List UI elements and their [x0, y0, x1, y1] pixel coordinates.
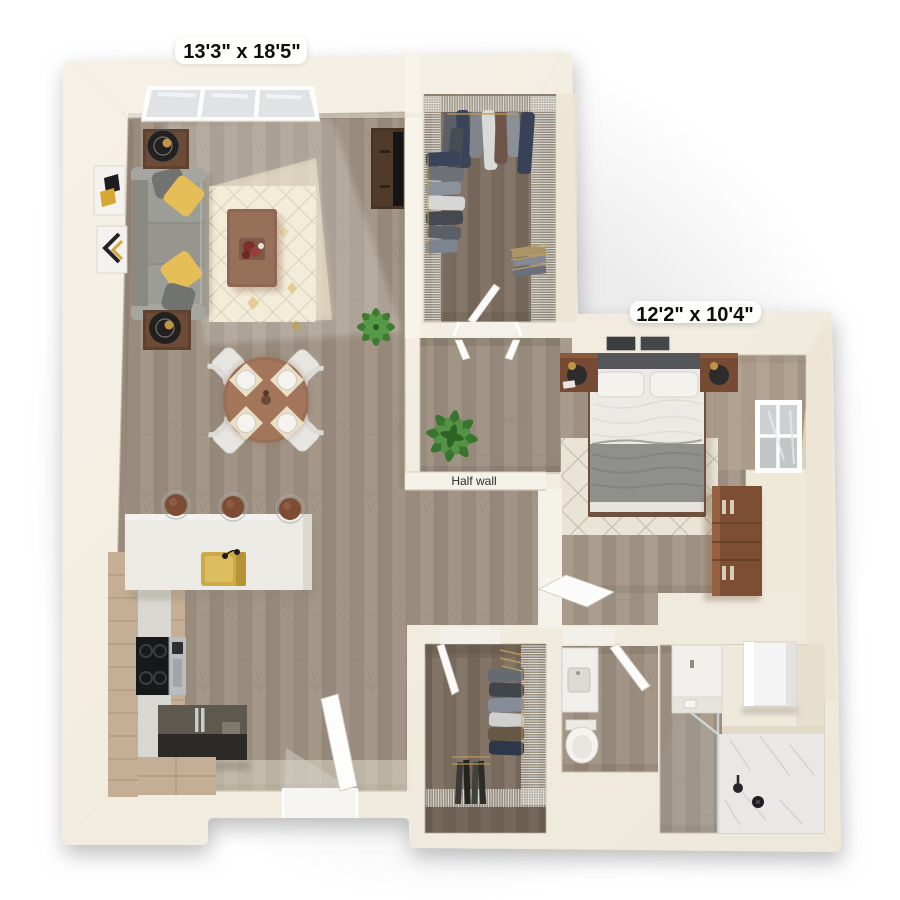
svg-text:12'2" x 10'4": 12'2" x 10'4" [636, 304, 753, 326]
svg-text:Half wall: Half wall [451, 474, 496, 488]
svg-text:13'3" x 18'5": 13'3" x 18'5" [183, 41, 300, 63]
